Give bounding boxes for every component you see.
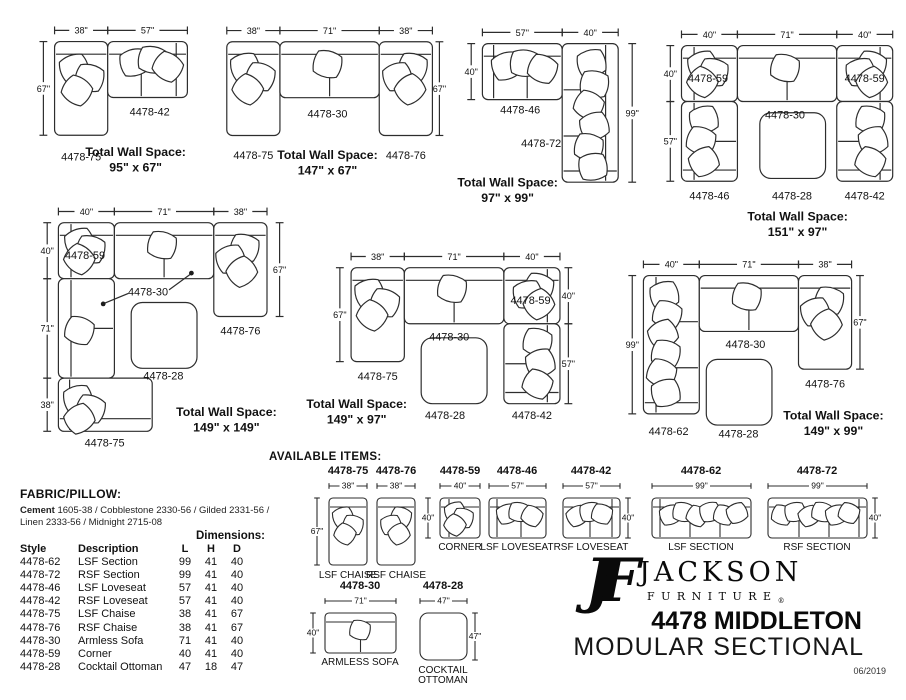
svg-text:40": 40" xyxy=(664,69,677,79)
dim-line: 38" xyxy=(214,205,267,218)
piece-label: 4478-75 xyxy=(233,150,273,162)
revision-date: 06/2019 xyxy=(853,666,886,676)
brand-type-text: FURNITURE xyxy=(647,590,778,603)
total-wall-space-heading: Total Wall Space: xyxy=(457,175,558,189)
item-4478-28: 4478-28 47" 47" COCKTAIL OTTOMAN xyxy=(408,579,487,695)
dim-line: 40" xyxy=(867,498,884,538)
piece-lsf-chaise xyxy=(55,42,108,136)
piece-armless-sofa-vertical xyxy=(58,279,114,378)
piece-label: 4478-28 xyxy=(425,410,465,422)
svg-text:99": 99" xyxy=(695,480,707,490)
dim-line: 40" xyxy=(420,498,437,538)
dim-line: 71" xyxy=(280,24,379,37)
piece-armless-sofa xyxy=(404,268,504,324)
dim-line: 40" xyxy=(305,613,322,653)
piece-label: 4478-30 xyxy=(725,339,765,351)
item-name: CORNER xyxy=(438,542,481,553)
leader-dot xyxy=(189,271,194,276)
fabric-lead: Cement xyxy=(20,505,55,516)
item-id: 4478-76 xyxy=(376,465,416,477)
dim-line: 38" xyxy=(799,258,852,271)
dim-line: 47" xyxy=(467,613,484,660)
config-diagram-151x97: 40" 71" 40" 40" 57" 4478-59 4478-30 4478… xyxy=(645,26,904,247)
piece-lsf-chaise xyxy=(329,498,367,565)
collection-title: 4478 MIDDLETON xyxy=(651,607,862,636)
dim-line: 71" xyxy=(737,28,836,41)
table-row: 4478-76RSF Chaise384167 xyxy=(20,622,260,635)
piece-label: 4478-76 xyxy=(220,326,260,338)
piece-rsf-chaise xyxy=(377,498,415,565)
svg-text:71": 71" xyxy=(41,324,54,334)
svg-text:40": 40" xyxy=(562,291,575,301)
dim-line: 67" xyxy=(309,498,326,565)
item-id: 4478-62 xyxy=(681,465,721,477)
dim-line: 40" xyxy=(35,223,59,279)
piece-rsf-section xyxy=(562,44,618,183)
svg-text:40": 40" xyxy=(422,512,434,522)
svg-text:40": 40" xyxy=(858,30,871,40)
svg-text:67": 67" xyxy=(37,84,50,94)
item-id: 4478-72 xyxy=(797,465,837,477)
col-l: L xyxy=(172,543,198,555)
dim-line: 40" xyxy=(562,26,618,39)
available-items-heading: AVAILABLE ITEMS: xyxy=(269,451,382,463)
piece-label: 4478-76 xyxy=(805,378,845,390)
piece-armless-sofa xyxy=(280,42,379,98)
svg-text:40": 40" xyxy=(622,512,634,522)
piece-label: 4478-42 xyxy=(130,107,170,119)
svg-text:57": 57" xyxy=(585,480,597,490)
dim-line: 99" xyxy=(768,480,867,490)
product-type-title: MODULAR SECTIONAL xyxy=(573,633,864,662)
svg-text:67": 67" xyxy=(273,265,286,275)
svg-text:57": 57" xyxy=(664,137,677,147)
piece-cocktail-ottoman xyxy=(760,113,826,179)
table-row: 4478-30Armless Sofa714140 xyxy=(20,635,260,648)
item-name: LSF SECTION xyxy=(668,542,734,553)
leader-dot xyxy=(101,302,106,307)
piece-label: 4478-59 xyxy=(845,73,885,85)
total-wall-space-value: 149" x 97" xyxy=(327,412,387,426)
svg-text:38": 38" xyxy=(818,260,831,270)
piece-cocktail-ottoman xyxy=(131,303,197,369)
col-style: Style xyxy=(20,543,46,555)
piece-label: 4478-76 xyxy=(386,150,426,162)
dim-line: 47" xyxy=(420,595,467,605)
svg-text:57": 57" xyxy=(516,28,529,38)
svg-text:38": 38" xyxy=(399,26,412,36)
svg-text:47": 47" xyxy=(469,631,481,641)
dim-line: 57" xyxy=(489,480,546,490)
piece-lsf-chaise xyxy=(58,378,152,437)
config-diagram-149x149: 40" 71" 38" 40" 71" 38" 67" 4478-59 4478… xyxy=(22,203,302,465)
col-description: Description xyxy=(78,543,139,555)
item-4478-30: 4478-30 71" 40" ARMLESS SOFA xyxy=(299,579,400,683)
dim-line: 67" xyxy=(268,223,292,317)
svg-text:71": 71" xyxy=(323,26,336,36)
dim-line: 67" xyxy=(32,42,56,136)
dim-line: 40" xyxy=(58,205,114,218)
svg-text:71": 71" xyxy=(780,30,793,40)
piece-label: 4478-28 xyxy=(772,190,812,202)
svg-text:40": 40" xyxy=(80,207,93,217)
piece-lsf-section xyxy=(652,498,751,538)
svg-text:71": 71" xyxy=(742,260,755,270)
svg-text:40": 40" xyxy=(584,28,597,38)
piece-rsf-chaise xyxy=(379,42,432,136)
fabric-line-2: Linen 2333-56 / Midnight 2715-08 xyxy=(20,517,278,529)
brand-type: FURNITURE® xyxy=(647,590,785,605)
dim-line: 57" xyxy=(563,480,620,490)
svg-text:67": 67" xyxy=(853,318,866,328)
item-id: 4478-46 xyxy=(497,465,537,477)
dim-line: 38" xyxy=(227,24,280,37)
svg-text:71": 71" xyxy=(157,207,170,217)
total-wall-space-heading: Total Wall Space: xyxy=(176,405,277,419)
col-d: D xyxy=(224,543,250,555)
piece-lsf-loveseat xyxy=(482,44,562,100)
svg-text:38": 38" xyxy=(390,480,402,490)
piece-label: 4478-42 xyxy=(845,190,885,202)
dim-line: 71" xyxy=(35,279,59,378)
fabric-pillow-block: FABRIC/PILLOW: Cement 1605-38 / Cobblest… xyxy=(20,487,278,528)
fabric-heading: FABRIC/PILLOW: xyxy=(20,487,278,501)
total-wall-space-value: 97" x 99" xyxy=(481,191,534,205)
svg-text:47": 47" xyxy=(437,595,449,605)
dim-line: 57" xyxy=(482,26,562,39)
spec-sheet-page: 38" 57" 67" 4478-75 4478-42 Total Wall S… xyxy=(0,0,906,700)
piece-armless-sofa xyxy=(699,276,798,332)
svg-text:40": 40" xyxy=(525,252,538,262)
table-header-row: Style Description L H D xyxy=(20,543,260,556)
dim-line: 38" xyxy=(377,480,415,490)
dim-line: 99" xyxy=(652,480,751,490)
item-id: 4478-59 xyxy=(440,465,480,477)
piece-lsf-chaise xyxy=(351,268,404,362)
piece-label: 4478-75 xyxy=(358,371,398,383)
piece-corner xyxy=(440,498,480,539)
piece-cocktail-ottoman xyxy=(706,359,772,425)
config-diagram-97x99: 57" 40" 40" 99" 4478-46 4478-72 Total Wa… xyxy=(446,24,656,227)
piece-rsf-section xyxy=(768,498,867,538)
dim-line: 40" xyxy=(440,480,480,490)
config-diagram-149x99: 40" 71" 38" 99" 67" 4478-62 4478-30 4478… xyxy=(604,256,898,446)
piece-label: 4478-28 xyxy=(143,371,183,383)
col-h: H xyxy=(198,543,224,555)
dim-line: 57" xyxy=(658,102,682,182)
config-diagram-95x67: 38" 57" 67" 4478-75 4478-42 Total Wall S… xyxy=(18,22,203,173)
svg-text:57": 57" xyxy=(511,480,523,490)
piece-rsf-loveseat xyxy=(563,498,620,538)
piece-label: 4478-59 xyxy=(65,250,105,262)
fabric-line-1: Cement 1605-38 / Cobblestone 2330-56 / G… xyxy=(20,505,278,517)
total-wall-space-heading: Total Wall Space: xyxy=(306,397,407,411)
piece-label: 4478-30 xyxy=(429,332,469,344)
total-wall-space-heading: Total Wall Space: xyxy=(85,145,185,159)
svg-text:38": 38" xyxy=(371,252,384,262)
item-id: 4478-30 xyxy=(340,580,380,592)
piece-label: 4478-28 xyxy=(718,429,758,441)
config-diagram-147x67: 38" 71" 38" 67" 4478-75 4478-30 4478-76 … xyxy=(210,22,445,179)
table-row: 4478-62LSF Section994140 xyxy=(20,556,260,569)
piece-lsf-loveseat xyxy=(489,498,546,538)
svg-text:71": 71" xyxy=(354,595,366,605)
svg-text:67": 67" xyxy=(311,526,323,536)
total-wall-space-value: 147" x 67" xyxy=(298,164,358,178)
total-wall-space-heading: Total Wall Space: xyxy=(783,408,883,422)
dim-line: 38" xyxy=(351,250,404,263)
dim-line: 40" xyxy=(504,250,560,263)
dimensions-heading: Dimensions: xyxy=(170,530,265,542)
item-4478-46: 4478-46 57" LSF LOVESEAT xyxy=(477,464,558,560)
fabric-rest: 1605-38 / Cobblestone 2330-56 / Gilded 2… xyxy=(55,505,269,516)
dim-line: 38" xyxy=(55,24,108,37)
total-wall-space-heading: Total Wall Space: xyxy=(747,209,847,223)
dim-line: 71" xyxy=(404,250,504,263)
svg-text:40": 40" xyxy=(703,30,716,40)
piece-label: 4478-59 xyxy=(688,73,728,85)
dim-line: 71" xyxy=(699,258,798,271)
svg-text:40": 40" xyxy=(465,67,478,77)
dim-line: 40" xyxy=(643,258,699,271)
dim-line: 38" xyxy=(35,378,59,431)
dim-line: 71" xyxy=(114,205,213,218)
dim-line: 40" xyxy=(620,498,637,538)
piece-armless-sofa xyxy=(325,613,396,653)
svg-text:38": 38" xyxy=(342,480,354,490)
piece-cocktail-ottoman xyxy=(420,613,467,660)
dim-line: 38" xyxy=(329,480,367,490)
total-wall-space-value: 151" x 97" xyxy=(768,225,828,239)
piece-label: 4478-46 xyxy=(500,105,540,117)
jf-monogram-logo: JF xyxy=(585,551,624,611)
dim-line: 57" xyxy=(108,24,188,37)
svg-text:40": 40" xyxy=(307,627,319,637)
svg-text:67": 67" xyxy=(333,310,346,320)
piece-label: 4478-59 xyxy=(510,295,550,307)
total-wall-space-value: 149" x 149" xyxy=(193,420,260,434)
svg-text:40": 40" xyxy=(869,512,881,522)
piece-lsf-loveseat xyxy=(681,102,737,182)
registered-mark: ® xyxy=(778,597,785,605)
svg-text:40": 40" xyxy=(665,260,678,270)
piece-label: 4478-42 xyxy=(512,410,552,422)
svg-text:38": 38" xyxy=(247,26,260,36)
svg-text:57": 57" xyxy=(141,26,154,36)
table-row: 4478-28Cocktail Ottoman471847 xyxy=(20,661,260,674)
piece-rsf-chaise xyxy=(213,223,267,317)
item-4478-72: 4478-72 99" 40" RSF SECTION xyxy=(756,464,887,560)
svg-text:38": 38" xyxy=(74,26,87,36)
piece-rsf-chaise xyxy=(798,276,852,370)
item-name: LSF LOVESEAT xyxy=(480,542,553,553)
table-row: 4478-42RSF Loveseat574140 xyxy=(20,595,260,608)
brand-name: JACKSON xyxy=(639,559,802,586)
item-id: 4478-42 xyxy=(571,465,611,477)
piece-rsf-loveseat xyxy=(108,42,188,98)
item-name: RSF SECTION xyxy=(783,542,850,553)
dim-line: 99" xyxy=(620,44,644,183)
table-row: 4478-46LSF Loveseat574140 xyxy=(20,582,260,595)
dim-line: 38" xyxy=(379,24,432,37)
table-rows: Style Description L H D 4478-62LSF Secti… xyxy=(20,543,260,674)
svg-text:40": 40" xyxy=(454,480,466,490)
piece-lsf-section xyxy=(643,276,699,414)
svg-text:71": 71" xyxy=(447,252,460,262)
svg-text:99": 99" xyxy=(811,480,823,490)
dim-line: 40" xyxy=(837,28,893,41)
piece-armless-sofa xyxy=(114,223,213,279)
piece-rsf-loveseat xyxy=(837,102,893,182)
item-4478-62: 4478-62 99" LSF SECTION xyxy=(640,464,763,560)
total-wall-space-value: 149" x 99" xyxy=(804,424,864,438)
table-row: 4478-72RSF Section994140 xyxy=(20,569,260,582)
item-name-line2: OTTOMAN xyxy=(418,675,468,686)
piece-label: 4478-62 xyxy=(649,426,689,438)
dim-line: 99" xyxy=(620,276,644,414)
piece-label: 4478-72 xyxy=(521,138,561,150)
svg-text:99": 99" xyxy=(626,108,639,118)
piece-label: 4478-46 xyxy=(689,190,729,202)
piece-cocktail-ottoman xyxy=(421,338,487,404)
table-row: 4478-75LSF Chaise384167 xyxy=(20,608,260,621)
dim-line: 71" xyxy=(325,595,396,605)
svg-text:57": 57" xyxy=(562,359,575,369)
svg-text:99": 99" xyxy=(626,340,639,350)
piece-label: 4478-75 xyxy=(85,438,125,450)
dim-line: 40" xyxy=(681,28,737,41)
piece-label: 4478-30 xyxy=(765,109,805,121)
svg-text:38": 38" xyxy=(41,400,54,410)
item-id: 4478-28 xyxy=(423,580,463,592)
dim-line: 67" xyxy=(328,268,352,362)
piece-label: 4478-30 xyxy=(307,108,347,120)
dim-line: 40" xyxy=(459,44,483,100)
svg-text:67": 67" xyxy=(433,84,446,94)
piece-rsf-loveseat xyxy=(504,324,560,404)
table-row: 4478-59Corner404140 xyxy=(20,648,260,661)
dim-line: 40" xyxy=(658,46,682,102)
config-diagram-149x97: 38" 71" 40" 67" 40" 57" 4478-75 4478-30 … xyxy=(295,248,588,429)
item-name: ARMLESS SOFA xyxy=(321,657,399,668)
total-wall-space-heading: Total Wall Space: xyxy=(277,148,377,162)
piece-label: 4478-30 xyxy=(128,287,168,299)
piece-armless-sofa xyxy=(737,46,836,102)
total-wall-space-value: 95" x 67" xyxy=(109,161,162,175)
svg-text:40": 40" xyxy=(41,246,54,256)
piece-lsf-chaise xyxy=(227,42,280,136)
svg-text:38": 38" xyxy=(234,207,247,217)
